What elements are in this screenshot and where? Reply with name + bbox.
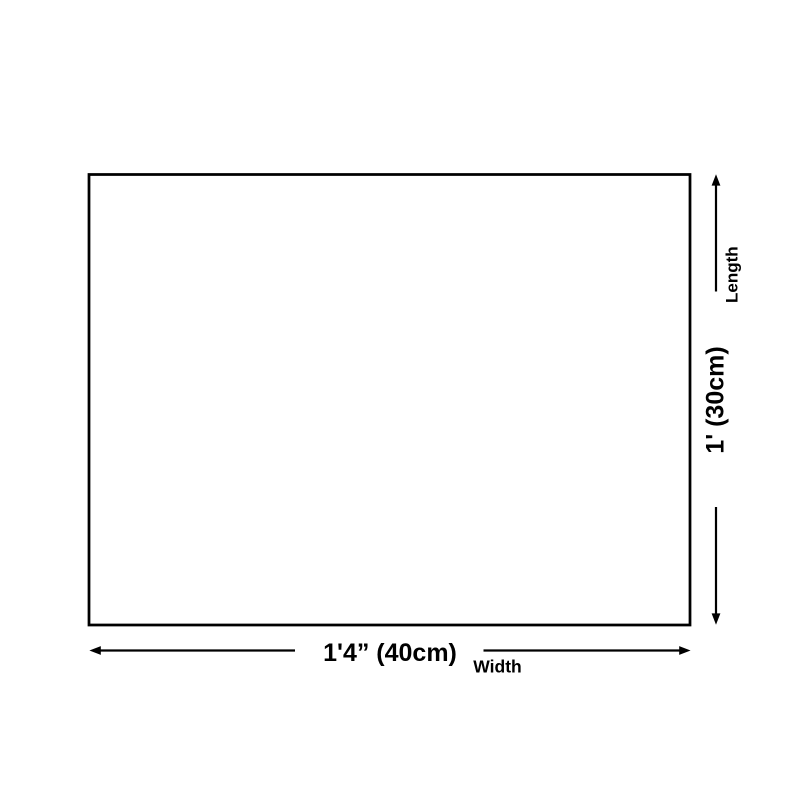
svg-text:Length: Length [723, 246, 742, 303]
svg-text:1'4” (40cm): 1'4” (40cm) [323, 639, 457, 667]
svg-text:Width: Width [473, 657, 521, 677]
svg-text:1' (30cm): 1' (30cm) [702, 346, 730, 453]
